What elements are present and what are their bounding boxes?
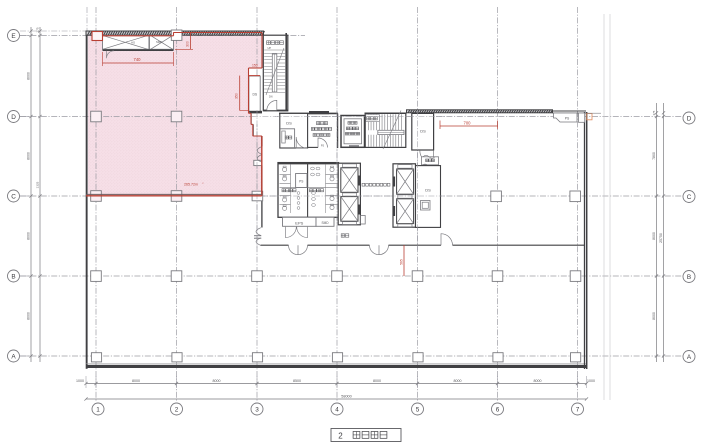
svg-text:350: 350 — [235, 93, 239, 99]
svg-text:6: 6 — [496, 406, 500, 413]
svg-text:1325: 1325 — [36, 181, 40, 188]
svg-text:740: 740 — [134, 57, 142, 62]
svg-text:E: E — [11, 33, 15, 40]
svg-text:D: D — [11, 114, 16, 121]
svg-text:8500: 8500 — [293, 379, 301, 383]
svg-text:700: 700 — [464, 120, 472, 125]
svg-text:8000: 8000 — [27, 312, 31, 320]
svg-text:3: 3 — [255, 406, 259, 413]
svg-text:PS: PS — [565, 117, 570, 121]
svg-text:SMD: SMD — [321, 221, 329, 225]
svg-text:8000: 8000 — [27, 72, 31, 80]
svg-text:DN: DN — [269, 96, 273, 99]
svg-text:375: 375 — [652, 110, 656, 115]
svg-text:300: 300 — [185, 41, 189, 47]
svg-text:B: B — [687, 274, 691, 281]
svg-text:5: 5 — [416, 406, 420, 413]
svg-text:7800: 7800 — [652, 152, 656, 160]
svg-text:8000: 8000 — [213, 379, 221, 383]
svg-text:DS: DS — [252, 93, 257, 97]
svg-text:UP: UP — [268, 46, 272, 50]
svg-text:2: 2 — [338, 432, 343, 441]
svg-text:265.72m: 265.72m — [184, 183, 198, 187]
svg-text:A: A — [11, 353, 16, 360]
svg-text:EPS: EPS — [295, 220, 303, 225]
svg-text:8000: 8000 — [652, 232, 656, 240]
svg-text:DS: DS — [425, 188, 431, 193]
svg-text:565: 565 — [399, 259, 403, 265]
svg-text:8000: 8000 — [534, 379, 542, 383]
svg-text:175: 175 — [36, 27, 40, 32]
svg-text:DS: DS — [420, 129, 426, 134]
svg-text:PS: PS — [299, 180, 303, 184]
svg-text:C: C — [11, 193, 16, 200]
svg-text:25750: 25750 — [659, 233, 663, 243]
svg-text:DS: DS — [286, 121, 292, 126]
svg-text:2: 2 — [175, 406, 179, 413]
svg-text:8000: 8000 — [27, 152, 31, 160]
svg-text:8000: 8000 — [454, 379, 462, 383]
svg-text:1000: 1000 — [587, 379, 595, 383]
svg-text:1000: 1000 — [76, 379, 84, 383]
svg-text:8000: 8000 — [132, 379, 140, 383]
svg-text:8000: 8000 — [652, 312, 656, 320]
svg-text:B: B — [11, 273, 15, 280]
svg-text:A: A — [687, 354, 692, 361]
svg-text:PS: PS — [321, 145, 325, 148]
svg-text:150: 150 — [252, 64, 258, 68]
svg-text:8000: 8000 — [27, 232, 31, 240]
svg-text:58000: 58000 — [341, 395, 352, 399]
svg-text:C: C — [687, 194, 692, 201]
svg-text:SMD: SMD — [156, 40, 162, 44]
svg-text:AS: AS — [131, 41, 135, 45]
svg-text:4: 4 — [335, 406, 339, 413]
svg-text:1: 1 — [96, 406, 100, 413]
svg-text:D: D — [687, 115, 692, 122]
svg-text:7: 7 — [576, 406, 580, 413]
svg-text:8000: 8000 — [373, 379, 381, 383]
